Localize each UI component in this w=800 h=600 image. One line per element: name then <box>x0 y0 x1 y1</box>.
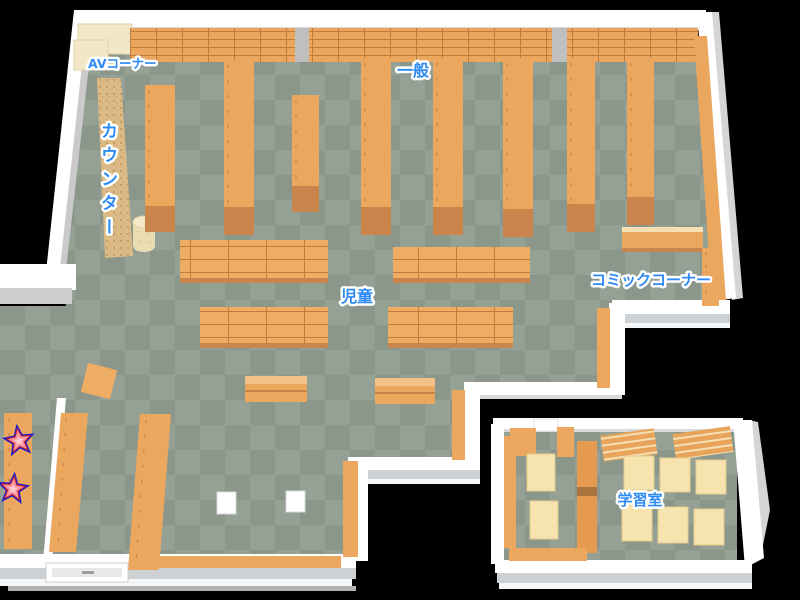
wall <box>497 573 752 583</box>
kids-shelf <box>388 307 513 348</box>
wall-shelf <box>452 390 465 460</box>
bench <box>375 378 435 404</box>
study-table <box>660 458 690 492</box>
wall <box>612 323 730 328</box>
bookshelf <box>557 427 574 457</box>
kids-shelf <box>180 240 328 283</box>
wall <box>82 10 706 28</box>
bookshelf <box>509 548 587 561</box>
pillar <box>295 28 309 62</box>
stool <box>286 491 305 512</box>
study-table <box>694 509 724 545</box>
door[interactable] <box>534 419 558 431</box>
wall-shelf <box>597 308 610 388</box>
area-label-study-room[interactable]: 学習室 <box>617 491 662 509</box>
bookshelf <box>224 60 254 235</box>
kids-shelf <box>393 247 530 283</box>
bookshelf <box>361 58 391 235</box>
pillar <box>552 28 567 62</box>
bookshelf <box>503 58 533 237</box>
bookshelf <box>292 95 319 212</box>
area-label-children[interactable]: 児童 <box>340 287 373 306</box>
wall <box>609 303 625 395</box>
stool <box>217 492 236 514</box>
bookshelf <box>567 58 595 232</box>
bookshelf <box>131 556 341 568</box>
kids-shelf <box>200 307 328 348</box>
wall <box>612 314 730 323</box>
bench <box>245 376 307 402</box>
door[interactable] <box>46 563 128 582</box>
study-table <box>527 454 555 491</box>
bookshelf <box>145 85 175 232</box>
area-label-av-corner[interactable]: AVコーナー <box>88 56 157 71</box>
bookshelf <box>433 58 463 235</box>
wall <box>0 288 72 304</box>
library-map: AVコーナー 一般 カウンター 児童 コミックコーナー 学習室 <box>0 0 800 600</box>
bookshelf <box>627 58 654 225</box>
wall <box>499 583 752 589</box>
wall <box>8 586 356 591</box>
bookshelf <box>343 461 358 557</box>
wall-shelf <box>130 28 698 62</box>
wall <box>464 388 480 462</box>
wall <box>491 424 504 564</box>
area-label-counter[interactable]: カウンター <box>97 122 117 242</box>
area-label-comic-corner[interactable]: コミックコーナー <box>591 271 711 289</box>
area-label-general[interactable]: 一般 <box>397 61 429 80</box>
wall <box>464 395 622 399</box>
library-map-stage: AVコーナー 一般 カウンター 児童 コミックコーナー 学習室 <box>0 0 800 600</box>
study-table <box>696 460 726 494</box>
study-table <box>530 501 558 539</box>
study-table <box>624 456 654 490</box>
wall <box>495 560 752 573</box>
study-table <box>658 507 688 543</box>
bookshelf <box>510 428 536 456</box>
wall <box>0 264 76 290</box>
study-table <box>622 505 652 541</box>
divider-shelf <box>577 441 597 553</box>
